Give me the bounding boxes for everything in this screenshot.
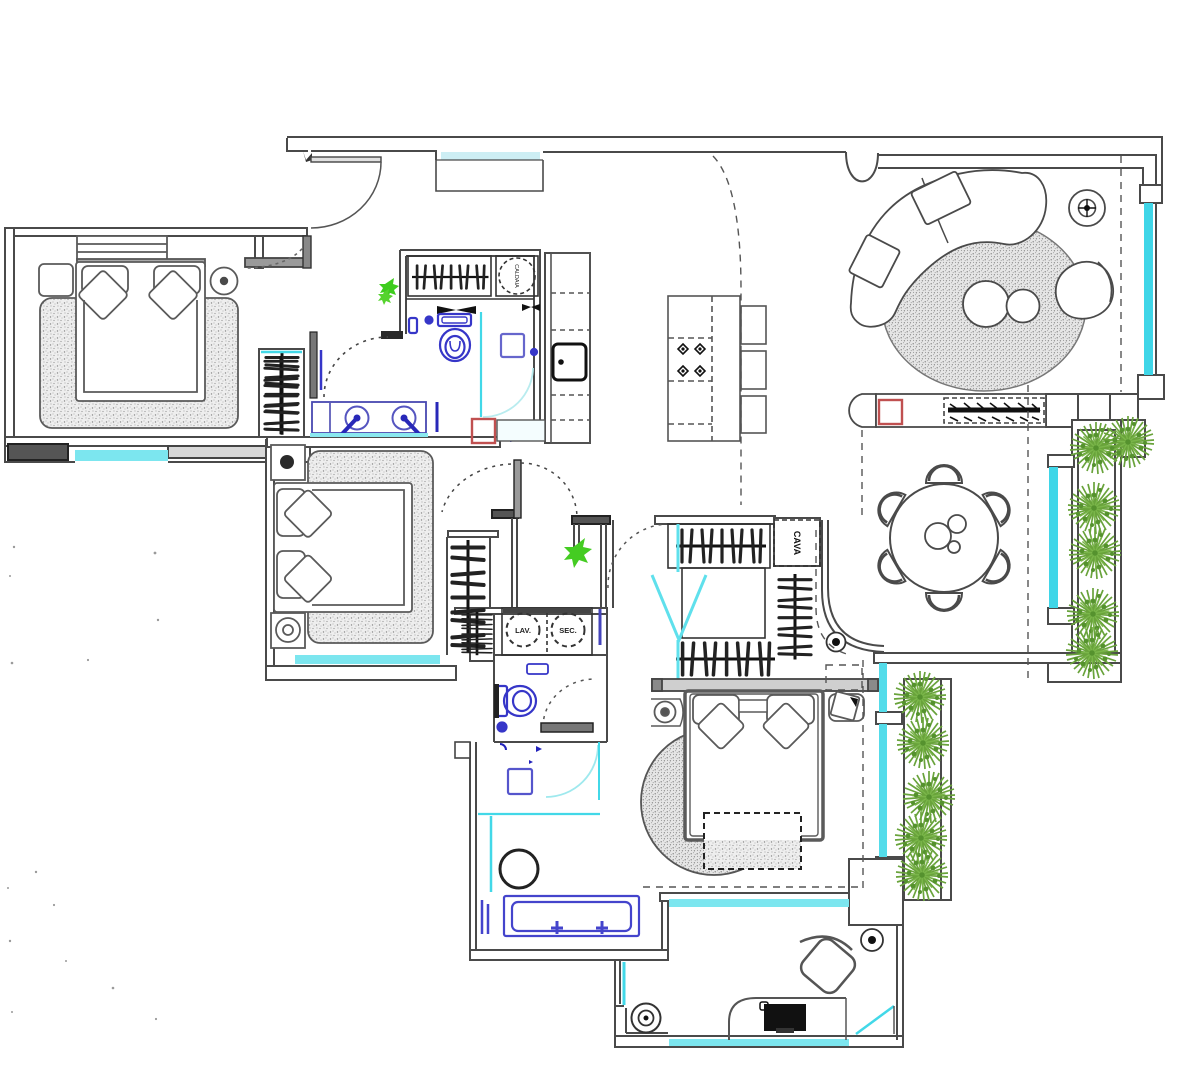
svg-text:LAV.: LAV. [515, 626, 531, 635]
svg-text:SEC.: SEC. [559, 626, 577, 635]
svg-text:CALDAIA: CALDAIA [513, 264, 519, 288]
svg-text:CAVA: CAVA [792, 531, 802, 556]
